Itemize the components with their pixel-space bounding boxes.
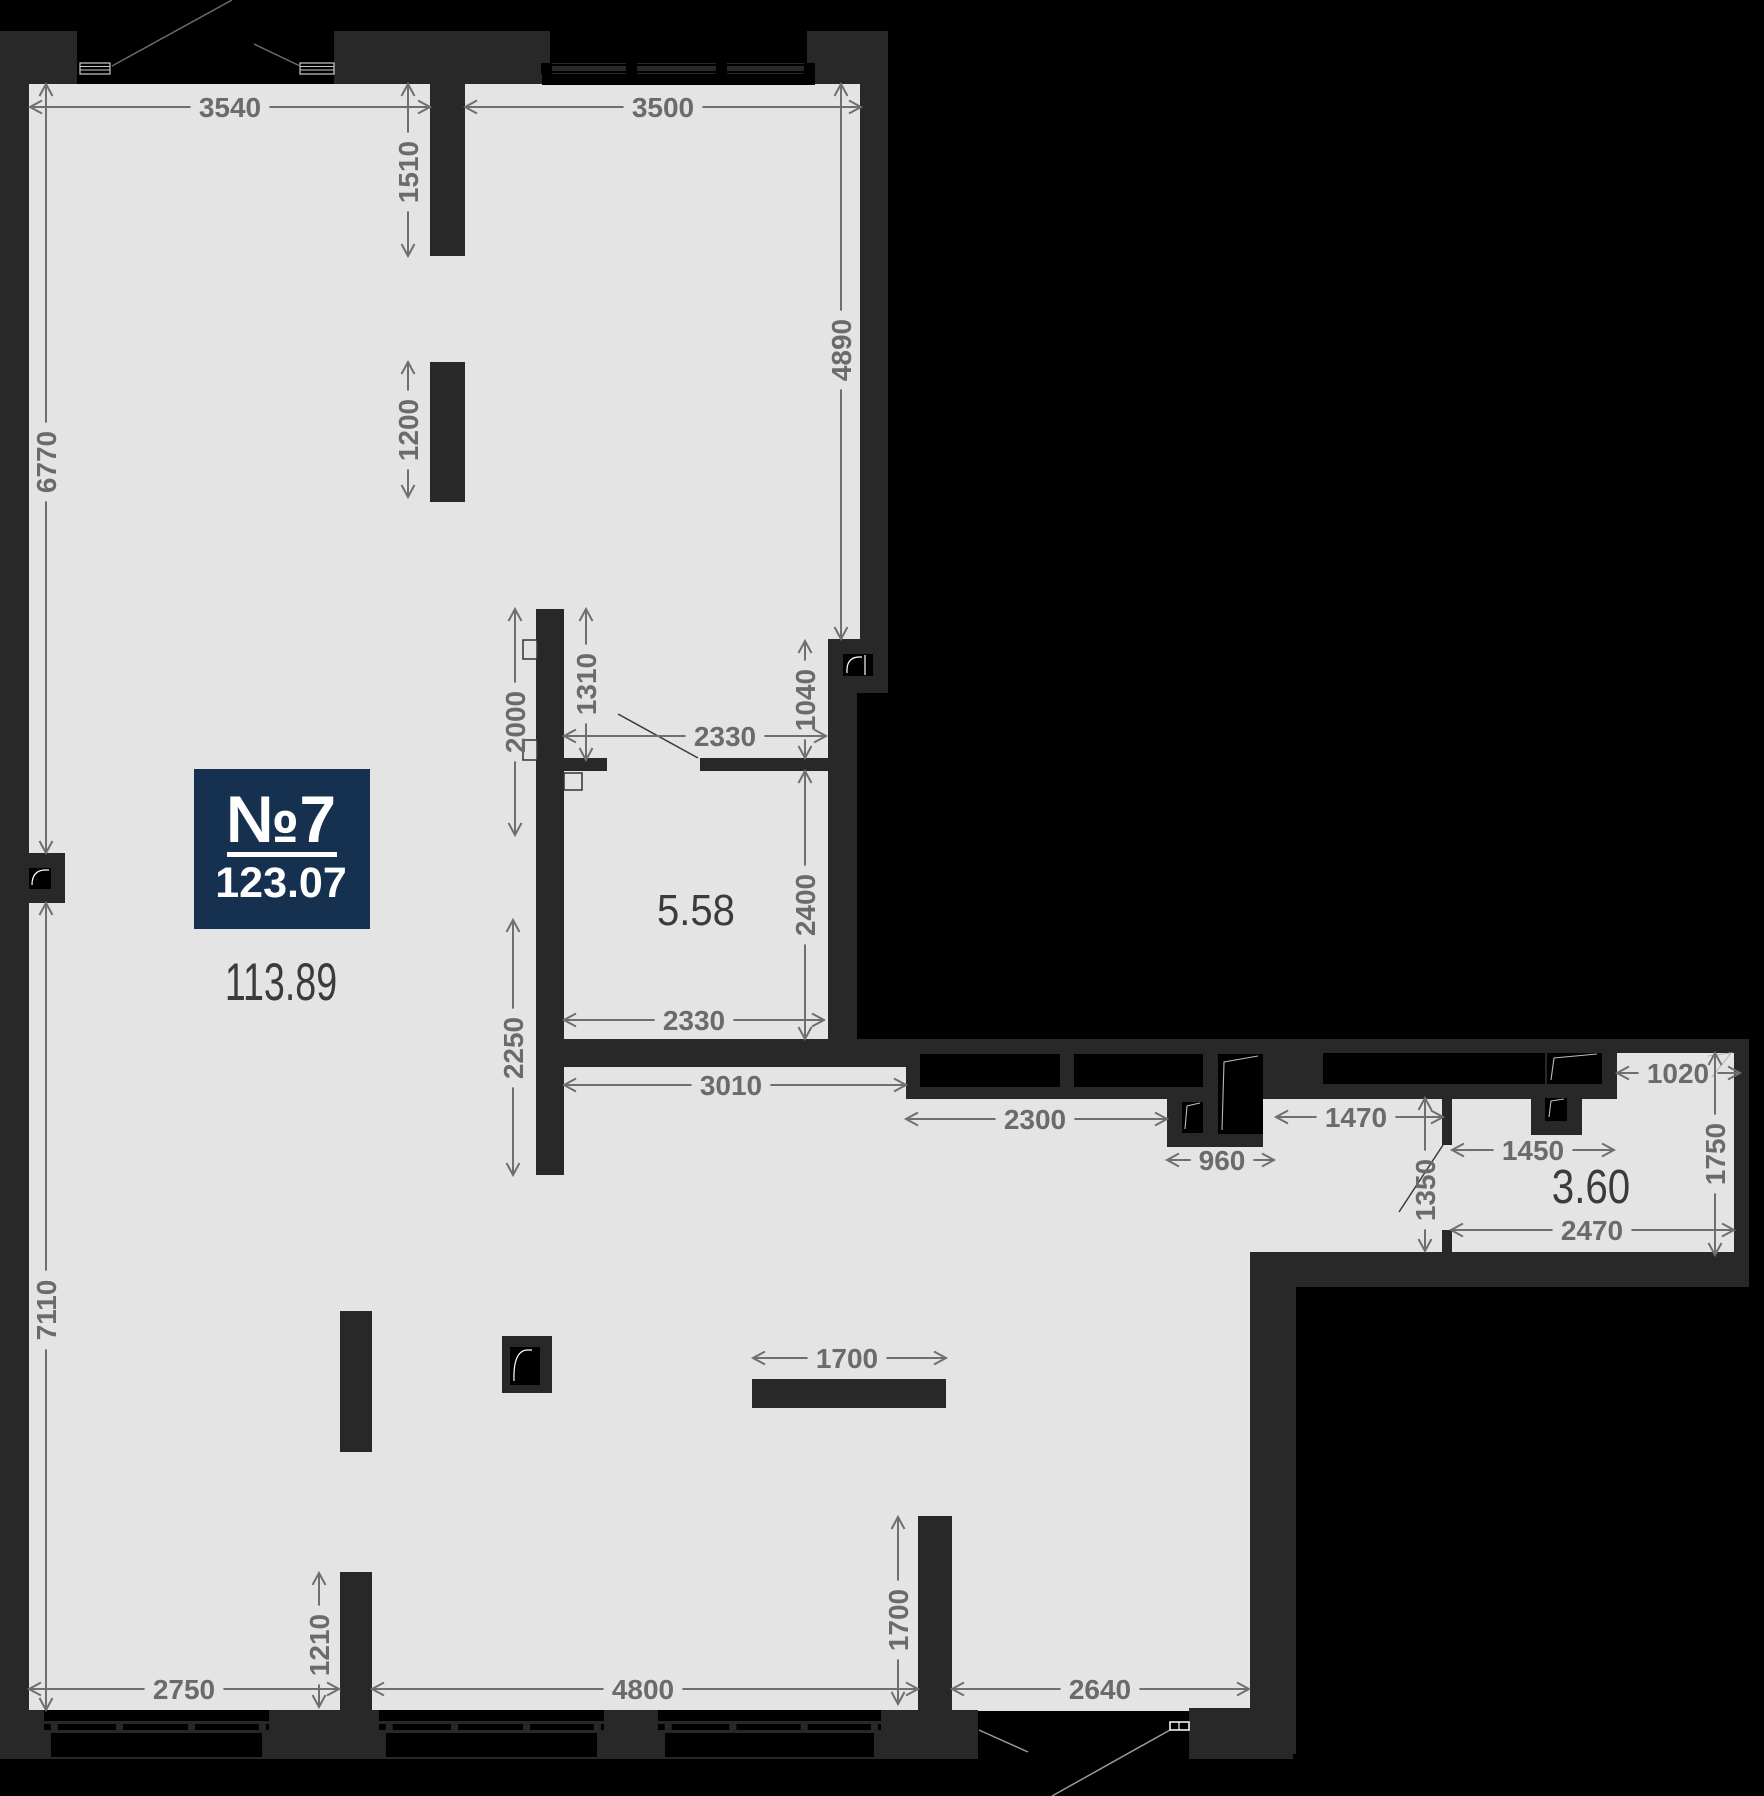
svg-text:2330: 2330 (663, 1005, 725, 1036)
svg-text:1750: 1750 (1700, 1123, 1731, 1185)
svg-text:1470: 1470 (1325, 1102, 1387, 1133)
svg-text:960: 960 (1199, 1145, 1246, 1176)
svg-text:1510: 1510 (393, 141, 424, 203)
svg-text:2000: 2000 (500, 691, 531, 753)
svg-text:6770: 6770 (31, 431, 62, 493)
svg-text:123.07: 123.07 (215, 859, 347, 907)
svg-text:3010: 3010 (700, 1070, 762, 1101)
svg-text:1700: 1700 (883, 1589, 914, 1651)
svg-text:2250: 2250 (498, 1017, 529, 1079)
svg-text:3500: 3500 (632, 92, 694, 123)
svg-text:1040: 1040 (790, 669, 821, 731)
svg-text:3.60: 3.60 (1552, 1161, 1630, 1214)
svg-text:2300: 2300 (1004, 1104, 1066, 1135)
svg-text:2640: 2640 (1069, 1674, 1131, 1705)
svg-text:2400: 2400 (790, 874, 821, 936)
svg-text:1020: 1020 (1647, 1058, 1709, 1089)
svg-text:2470: 2470 (1561, 1215, 1623, 1246)
svg-text:3540: 3540 (199, 92, 261, 123)
svg-text:2750: 2750 (153, 1674, 215, 1705)
svg-text:2330: 2330 (694, 721, 756, 752)
svg-text:№7: №7 (226, 782, 336, 856)
svg-text:1310: 1310 (571, 653, 602, 715)
svg-text:7110: 7110 (31, 1280, 62, 1341)
svg-text:1700: 1700 (816, 1343, 878, 1374)
svg-text:113.89: 113.89 (225, 952, 337, 1012)
svg-text:4800: 4800 (612, 1674, 674, 1705)
svg-text:4890: 4890 (826, 319, 857, 381)
svg-text:1210: 1210 (304, 1614, 335, 1676)
svg-text:5.58: 5.58 (657, 885, 735, 934)
svg-text:1200: 1200 (393, 399, 424, 461)
svg-text:1350: 1350 (1410, 1159, 1441, 1221)
